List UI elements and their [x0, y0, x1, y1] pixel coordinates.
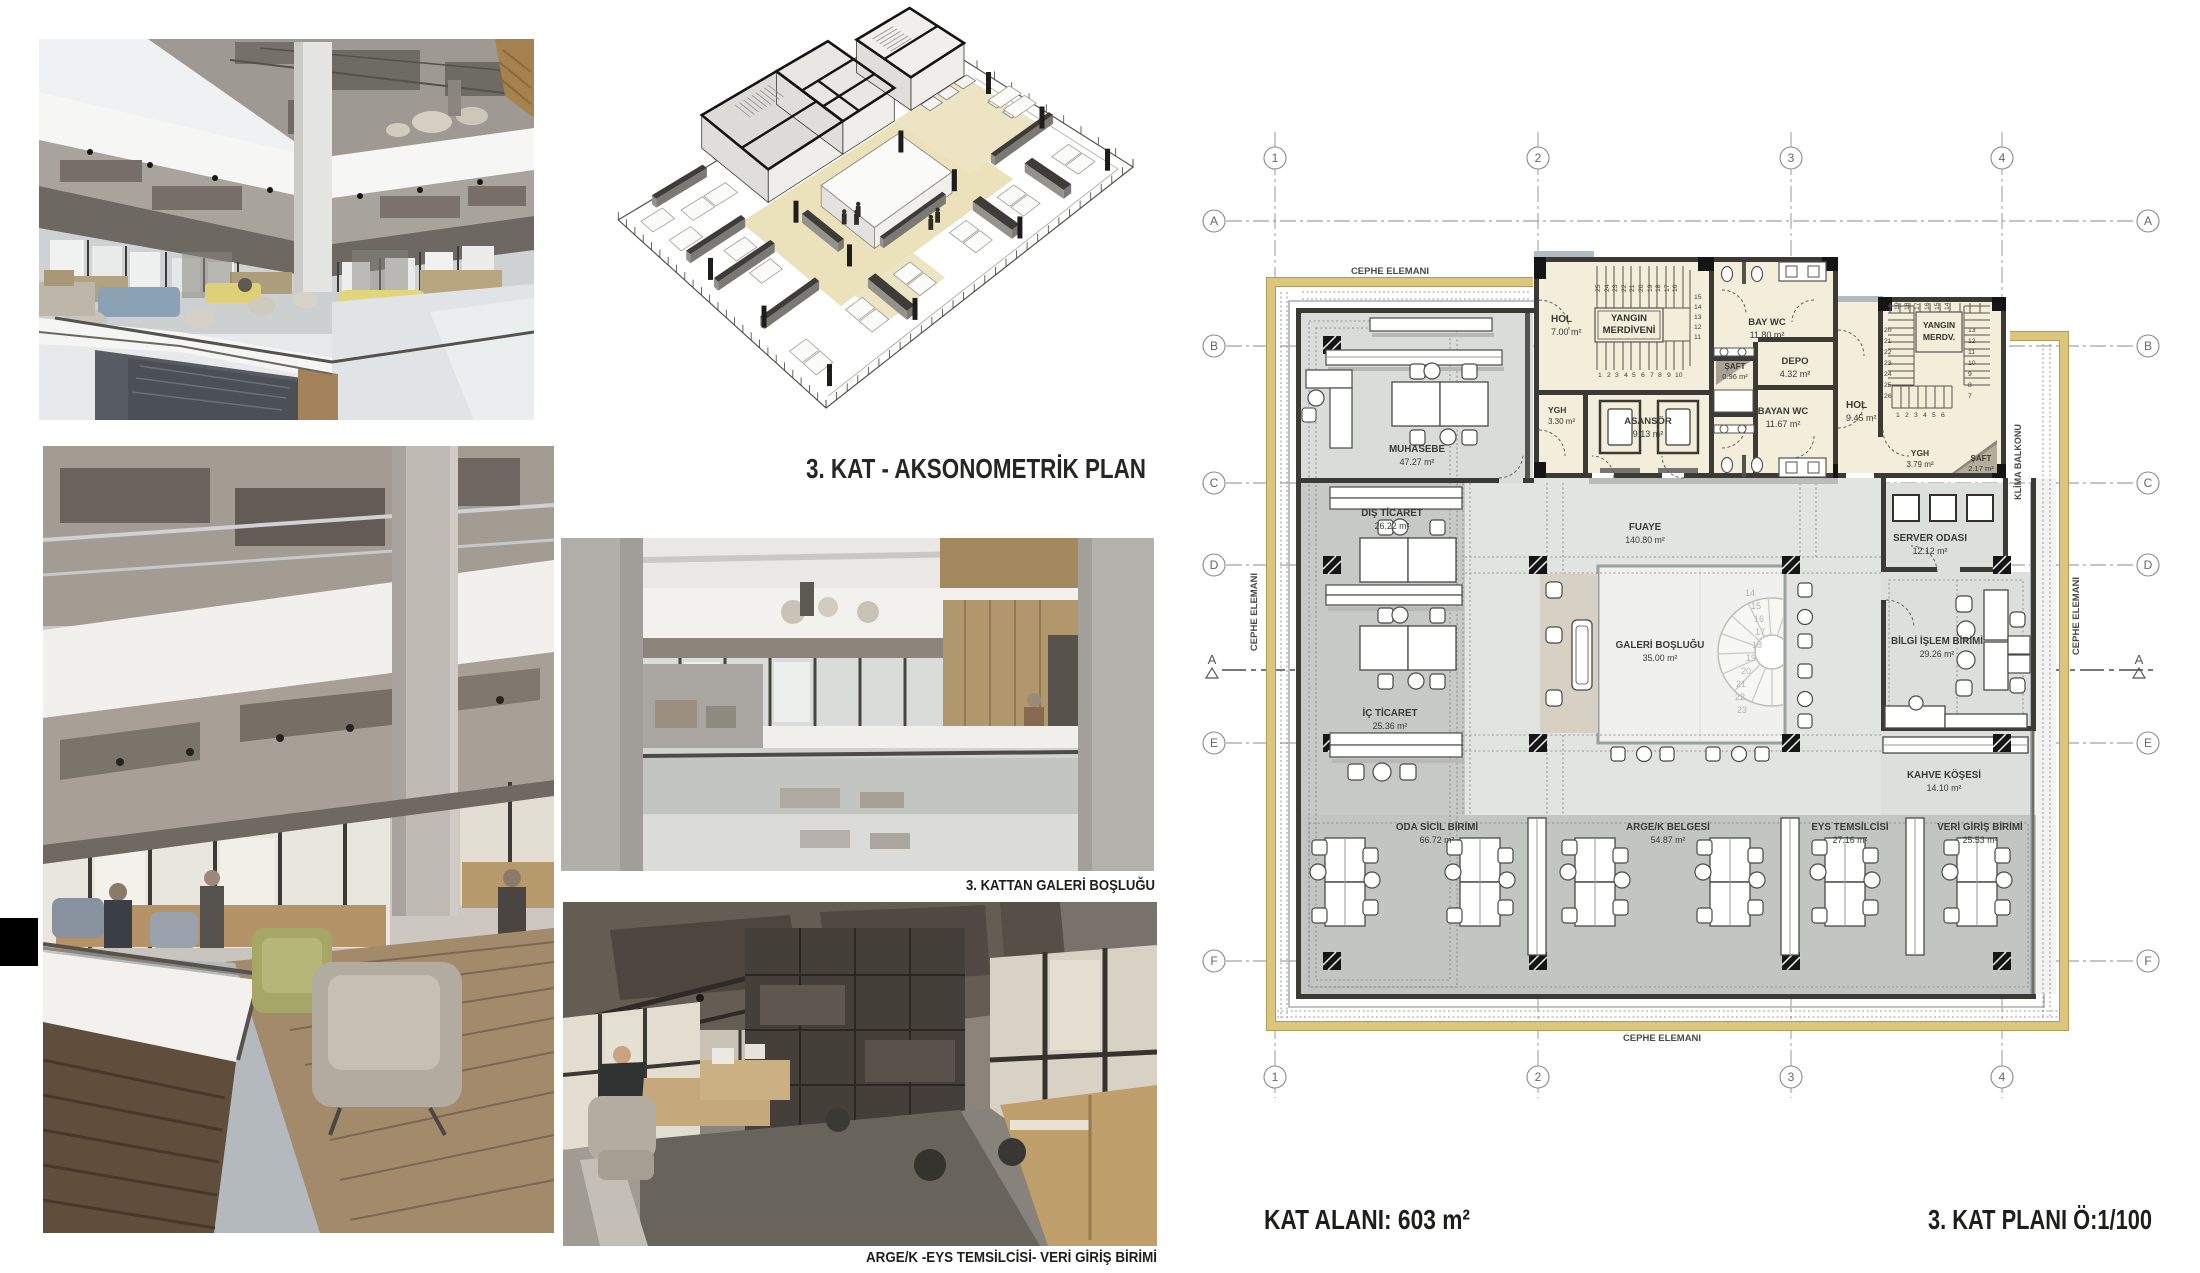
svg-text:ŞAFT: ŞAFT: [1725, 362, 1746, 371]
svg-text:A: A: [1210, 214, 1218, 228]
svg-text:9.45 m²: 9.45 m²: [1846, 413, 1877, 423]
svg-text:25.36 m²: 25.36 m²: [1373, 721, 1408, 731]
svg-text:14: 14: [1694, 304, 1702, 311]
svg-text:B: B: [2144, 339, 2152, 353]
svg-text:3: 3: [1914, 412, 1918, 419]
svg-text:16: 16: [1672, 284, 1679, 292]
svg-text:8: 8: [1968, 382, 1972, 389]
svg-text:CEPHE ELEMANI: CEPHE ELEMANI: [1623, 1033, 1701, 1044]
svg-text:11: 11: [1694, 334, 1701, 341]
svg-text:ŞAFT: ŞAFT: [1971, 454, 1992, 463]
svg-text:YANGIN: YANGIN: [1611, 313, 1647, 324]
svg-text:A: A: [1208, 652, 1217, 667]
svg-text:4.32 m²: 4.32 m²: [1780, 369, 1811, 379]
svg-text:9.13 m²: 9.13 m²: [1633, 429, 1664, 439]
svg-text:18: 18: [1752, 640, 1762, 650]
svg-text:8: 8: [1658, 372, 1662, 379]
svg-text:140.80 m²: 140.80 m²: [1625, 535, 1665, 545]
svg-text:7.00 m²: 7.00 m²: [1551, 327, 1582, 337]
svg-text:14: 14: [1944, 302, 1951, 310]
svg-text:BAYAN WC: BAYAN WC: [1758, 406, 1809, 417]
svg-text:HOL: HOL: [1551, 314, 1572, 325]
svg-text:3.30 m²: 3.30 m²: [1548, 417, 1575, 426]
svg-text:CEPHE ELEMANI: CEPHE ELEMANI: [1249, 573, 1260, 651]
svg-text:E: E: [2144, 736, 2152, 750]
svg-text:4: 4: [1999, 151, 2006, 165]
svg-text:54.87 m²: 54.87 m²: [1651, 835, 1686, 845]
svg-text:YGH: YGH: [1548, 405, 1566, 415]
svg-text:11: 11: [1968, 349, 1975, 356]
svg-text:SERVER ODASI: SERVER ODASI: [1893, 533, 1967, 544]
svg-text:GALERİ BOŞLUĞU: GALERİ BOŞLUĞU: [1616, 639, 1705, 651]
svg-text:3: 3: [1615, 372, 1619, 379]
svg-text:2: 2: [1905, 412, 1909, 419]
svg-text:15: 15: [1694, 294, 1702, 301]
svg-text:23: 23: [1612, 284, 1619, 292]
svg-text:3. KAT PLANI Ö:1/100: 3. KAT PLANI Ö:1/100: [1928, 1204, 2152, 1235]
svg-text:22: 22: [1621, 284, 1628, 292]
svg-text:14.10 m²: 14.10 m²: [1927, 783, 1962, 793]
svg-text:2: 2: [1535, 1070, 1542, 1084]
svg-text:26: 26: [1884, 393, 1892, 400]
svg-text:66.72 m²: 66.72 m²: [1420, 835, 1455, 845]
svg-text:6: 6: [1941, 412, 1945, 419]
svg-text:YANGIN: YANGIN: [1923, 320, 1955, 330]
svg-text:6: 6: [1641, 372, 1645, 379]
svg-text:E: E: [1210, 736, 1218, 750]
svg-text:D: D: [1210, 558, 1219, 572]
svg-text:19: 19: [1894, 302, 1901, 310]
svg-text:EYS TEMSİLCİSİ: EYS TEMSİLCİSİ: [1811, 822, 1889, 833]
svg-text:C: C: [1210, 476, 1219, 490]
svg-text:9: 9: [1968, 371, 1972, 378]
svg-text:0.96 m²: 0.96 m²: [1722, 372, 1748, 381]
svg-text:24: 24: [1884, 371, 1892, 378]
svg-text:11.80 m²: 11.80 m²: [1750, 330, 1785, 340]
svg-text:3: 3: [1788, 151, 1795, 165]
svg-text:DIŞ TİCARET: DIŞ TİCARET: [1361, 508, 1423, 519]
svg-text:23: 23: [1737, 705, 1747, 715]
svg-text:29.26 m²: 29.26 m²: [1920, 649, 1955, 659]
svg-text:KLİMA BALKONU: KLİMA BALKONU: [2013, 424, 2023, 500]
svg-text:21: 21: [1884, 338, 1892, 345]
svg-text:1: 1: [1272, 151, 1279, 165]
svg-text:12: 12: [1968, 338, 1976, 345]
svg-text:VERİ GİRİŞ BİRİMİ: VERİ GİRİŞ BİRİMİ: [1937, 822, 2023, 833]
svg-text:2: 2: [1607, 372, 1611, 379]
svg-text:FUAYE: FUAYE: [1629, 522, 1662, 533]
svg-text:ODA SİCİL BİRİMİ: ODA SİCİL BİRİMİ: [1396, 822, 1478, 833]
svg-text:A: A: [2144, 214, 2152, 228]
svg-text:22: 22: [1735, 692, 1745, 702]
svg-text:3: 3: [1788, 1070, 1795, 1084]
svg-text:20: 20: [1741, 666, 1751, 676]
svg-text:7: 7: [1650, 372, 1654, 379]
svg-text:MUHASEBE: MUHASEBE: [1389, 444, 1446, 455]
svg-text:C: C: [2144, 476, 2153, 490]
svg-text:25: 25: [1884, 382, 1892, 389]
svg-text:20: 20: [1884, 327, 1892, 334]
svg-text:12: 12: [1694, 324, 1702, 331]
svg-text:47.27 m²: 47.27 m²: [1400, 457, 1435, 467]
svg-text:13: 13: [1968, 327, 1976, 334]
svg-text:BAY WC: BAY WC: [1748, 317, 1786, 328]
svg-text:2.17 m²: 2.17 m²: [1968, 464, 1994, 473]
svg-text:KAT ALANI: 603 m²: KAT ALANI: 603 m²: [1264, 1204, 1470, 1235]
svg-text:16: 16: [1924, 302, 1931, 310]
svg-text:10: 10: [1675, 372, 1683, 379]
svg-text:13: 13: [1694, 314, 1702, 321]
svg-text:17: 17: [1664, 284, 1671, 292]
svg-text:ARGE/K BELGESİ: ARGE/K BELGESİ: [1626, 822, 1710, 833]
svg-text:3. KAT - AKSONOMETRİK PLAN: 3. KAT - AKSONOMETRİK PLAN: [806, 453, 1146, 484]
svg-text:HOL: HOL: [1846, 400, 1867, 411]
svg-text:23: 23: [1884, 360, 1892, 367]
svg-text:17: 17: [1914, 302, 1921, 310]
svg-text:DEPO: DEPO: [1782, 356, 1809, 367]
svg-text:4: 4: [1624, 372, 1628, 379]
svg-text:F: F: [1210, 954, 1217, 968]
svg-text:4: 4: [1999, 1070, 2006, 1084]
svg-text:21: 21: [1629, 284, 1636, 292]
svg-text:20: 20: [1638, 284, 1645, 292]
svg-text:24: 24: [1604, 284, 1611, 292]
svg-text:CEPHE ELEMANI: CEPHE ELEMANI: [1351, 266, 1429, 277]
svg-text:ASANSÖR: ASANSÖR: [1624, 416, 1672, 427]
svg-text:2: 2: [1535, 151, 1542, 165]
svg-text:18: 18: [1655, 284, 1662, 292]
svg-text:7: 7: [1968, 393, 1972, 400]
svg-text:27.16 m²: 27.16 m²: [1833, 835, 1868, 845]
svg-text:BİLGİ İŞLEM BİRİMİ: BİLGİ İŞLEM BİRİMİ: [1891, 636, 1983, 647]
svg-text:26.22 m²: 26.22 m²: [1375, 521, 1410, 531]
svg-text:4: 4: [1923, 412, 1927, 419]
svg-text:1: 1: [1598, 372, 1602, 379]
svg-text:İÇ TİCARET: İÇ TİCARET: [1363, 708, 1418, 719]
svg-text:MERDİVENİ: MERDİVENİ: [1603, 325, 1656, 336]
svg-text:15: 15: [1934, 302, 1941, 310]
svg-text:5: 5: [1632, 372, 1636, 379]
svg-text:25.53 m²: 25.53 m²: [1963, 835, 1998, 845]
svg-text:ARGE/K -EYS TEMSİLCİSİ- VERİ G: ARGE/K -EYS TEMSİLCİSİ- VERİ GİRİŞ BİRİM…: [866, 1249, 1157, 1266]
svg-text:25: 25: [1595, 284, 1602, 292]
svg-text:MERDV.: MERDV.: [1923, 332, 1955, 342]
svg-text:16: 16: [1754, 614, 1764, 624]
svg-text:CEPHE ELEMANI: CEPHE ELEMANI: [2071, 577, 2082, 655]
svg-text:F: F: [2144, 954, 2151, 968]
svg-text:B: B: [1210, 339, 1218, 353]
svg-text:22: 22: [1884, 349, 1892, 356]
svg-text:3.79 m²: 3.79 m²: [1906, 460, 1933, 469]
svg-text:5: 5: [1932, 412, 1936, 419]
svg-text:19: 19: [1647, 284, 1654, 292]
svg-text:9: 9: [1667, 372, 1671, 379]
svg-text:3. KATTAN GALERİ BOŞLUĞU: 3. KATTAN GALERİ BOŞLUĞU: [966, 876, 1155, 894]
svg-text:15: 15: [1751, 601, 1761, 611]
svg-text:19: 19: [1746, 653, 1756, 663]
svg-text:14: 14: [1745, 588, 1755, 598]
svg-text:KAHVE KÖŞESİ: KAHVE KÖŞESİ: [1907, 770, 1981, 781]
svg-text:35.00 m²: 35.00 m²: [1643, 653, 1678, 663]
svg-text:YGH: YGH: [1911, 448, 1929, 458]
svg-text:11.67 m²: 11.67 m²: [1766, 419, 1801, 429]
svg-text:12.12 m²: 12.12 m²: [1913, 546, 1948, 556]
svg-text:10: 10: [1968, 360, 1976, 367]
svg-text:D: D: [2144, 558, 2153, 572]
svg-text:18: 18: [1904, 302, 1911, 310]
svg-text:1: 1: [1896, 412, 1900, 419]
svg-text:1: 1: [1272, 1070, 1279, 1084]
svg-text:A: A: [2135, 652, 2144, 667]
svg-text:17: 17: [1755, 627, 1765, 637]
svg-text:21: 21: [1736, 679, 1746, 689]
